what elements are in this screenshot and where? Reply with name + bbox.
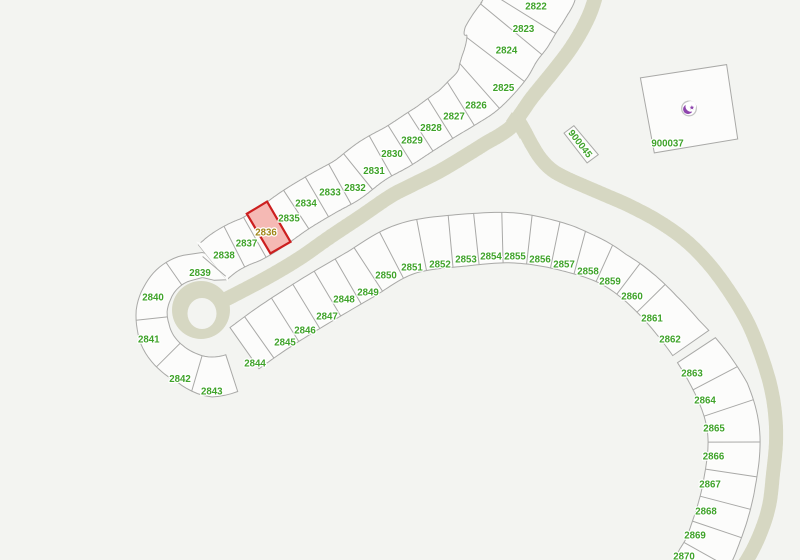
svg-text:2863: 2863 [681, 369, 703, 380]
svg-text:2844: 2844 [244, 359, 266, 370]
svg-text:2836: 2836 [255, 228, 277, 239]
svg-text:2854: 2854 [480, 252, 502, 263]
svg-text:2827: 2827 [443, 112, 465, 123]
svg-text:2856: 2856 [529, 255, 551, 266]
svg-text:2867: 2867 [699, 480, 721, 491]
svg-text:2835: 2835 [278, 214, 300, 225]
svg-text:2858: 2858 [577, 267, 599, 278]
svg-text:2828: 2828 [420, 123, 442, 134]
svg-text:2832: 2832 [344, 183, 366, 194]
svg-text:2868: 2868 [695, 507, 717, 518]
svg-text:2825: 2825 [493, 83, 515, 94]
svg-text:2837: 2837 [236, 239, 258, 250]
svg-text:2842: 2842 [169, 374, 191, 385]
svg-text:2834: 2834 [295, 199, 317, 210]
svg-text:2861: 2861 [641, 314, 663, 325]
svg-text:2859: 2859 [599, 277, 621, 288]
svg-text:2841: 2841 [138, 335, 160, 346]
svg-text:2866: 2866 [703, 452, 725, 463]
svg-text:2860: 2860 [621, 292, 643, 303]
svg-text:2857: 2857 [553, 260, 575, 271]
svg-text:2829: 2829 [401, 136, 423, 147]
svg-text:2855: 2855 [504, 252, 526, 263]
svg-text:2848: 2848 [333, 295, 355, 306]
svg-text:2862: 2862 [659, 335, 681, 346]
svg-text:2840: 2840 [142, 293, 164, 304]
svg-text:2846: 2846 [294, 326, 316, 337]
svg-text:2838: 2838 [213, 251, 235, 262]
svg-text:2869: 2869 [684, 531, 706, 542]
svg-text:2852: 2852 [429, 260, 451, 271]
svg-text:2847: 2847 [316, 312, 338, 323]
svg-text:2826: 2826 [465, 101, 487, 112]
svg-text:2864: 2864 [694, 396, 716, 407]
svg-text:2823: 2823 [513, 24, 535, 35]
svg-text:2853: 2853 [455, 255, 477, 266]
svg-text:2830: 2830 [381, 149, 403, 160]
svg-text:2845: 2845 [274, 338, 296, 349]
svg-text:2822: 2822 [525, 2, 547, 13]
svg-text:900037: 900037 [651, 139, 683, 150]
svg-text:2870: 2870 [673, 552, 695, 560]
svg-text:2824: 2824 [496, 46, 518, 57]
svg-text:2833: 2833 [319, 188, 341, 199]
svg-text:2839: 2839 [189, 268, 211, 279]
svg-text:2850: 2850 [375, 271, 397, 282]
svg-text:2851: 2851 [401, 263, 423, 274]
svg-text:2831: 2831 [363, 166, 385, 177]
svg-text:2865: 2865 [703, 424, 725, 435]
svg-text:2849: 2849 [357, 288, 379, 299]
svg-text:2843: 2843 [201, 387, 223, 398]
